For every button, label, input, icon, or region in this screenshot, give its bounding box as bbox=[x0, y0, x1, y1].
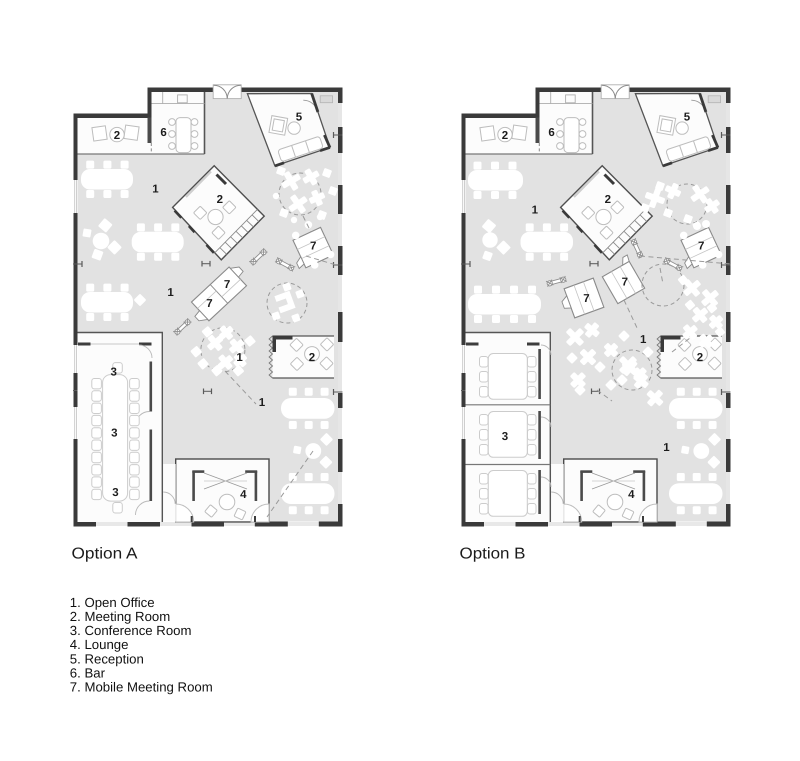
svg-text:2: 2 bbox=[697, 352, 703, 364]
svg-text:2. Meeting Room: 2. Meeting Room bbox=[70, 609, 170, 624]
svg-text:2: 2 bbox=[502, 130, 508, 142]
svg-text:1: 1 bbox=[167, 287, 174, 299]
svg-text:2: 2 bbox=[605, 194, 611, 206]
svg-text:Option A: Option A bbox=[72, 546, 138, 563]
svg-text:7: 7 bbox=[224, 279, 230, 291]
svg-text:3: 3 bbox=[502, 431, 508, 443]
svg-text:2: 2 bbox=[114, 130, 120, 142]
svg-text:4: 4 bbox=[240, 489, 247, 501]
svg-text:7: 7 bbox=[698, 240, 704, 252]
svg-text:1. Open Office: 1. Open Office bbox=[70, 595, 155, 610]
svg-text:Option B: Option B bbox=[460, 546, 526, 563]
svg-text:2: 2 bbox=[309, 352, 315, 364]
svg-text:7: 7 bbox=[206, 298, 212, 310]
svg-text:1: 1 bbox=[663, 442, 670, 454]
svg-text:2: 2 bbox=[217, 194, 223, 206]
svg-text:3. Conference Room: 3. Conference Room bbox=[70, 623, 192, 638]
svg-text:3: 3 bbox=[110, 367, 116, 379]
svg-text:6: 6 bbox=[160, 127, 166, 139]
svg-text:3: 3 bbox=[111, 428, 117, 440]
svg-text:7: 7 bbox=[622, 277, 628, 289]
svg-text:1: 1 bbox=[532, 204, 539, 216]
svg-text:5: 5 bbox=[684, 112, 691, 124]
svg-text:1: 1 bbox=[236, 352, 243, 364]
svg-text:5. Reception: 5. Reception bbox=[70, 651, 144, 666]
svg-text:7. Mobile Meeting Room: 7. Mobile Meeting Room bbox=[70, 680, 213, 695]
svg-text:5: 5 bbox=[296, 112, 303, 124]
svg-text:4: 4 bbox=[628, 489, 635, 501]
svg-text:3: 3 bbox=[112, 487, 118, 499]
svg-text:6. Bar: 6. Bar bbox=[70, 666, 106, 681]
svg-text:7: 7 bbox=[310, 240, 316, 252]
svg-text:1: 1 bbox=[640, 334, 647, 346]
svg-text:7: 7 bbox=[583, 293, 589, 305]
svg-text:4. Lounge: 4. Lounge bbox=[70, 637, 129, 652]
svg-text:6: 6 bbox=[548, 127, 554, 139]
svg-text:1: 1 bbox=[259, 397, 266, 409]
svg-text:1: 1 bbox=[152, 184, 159, 196]
